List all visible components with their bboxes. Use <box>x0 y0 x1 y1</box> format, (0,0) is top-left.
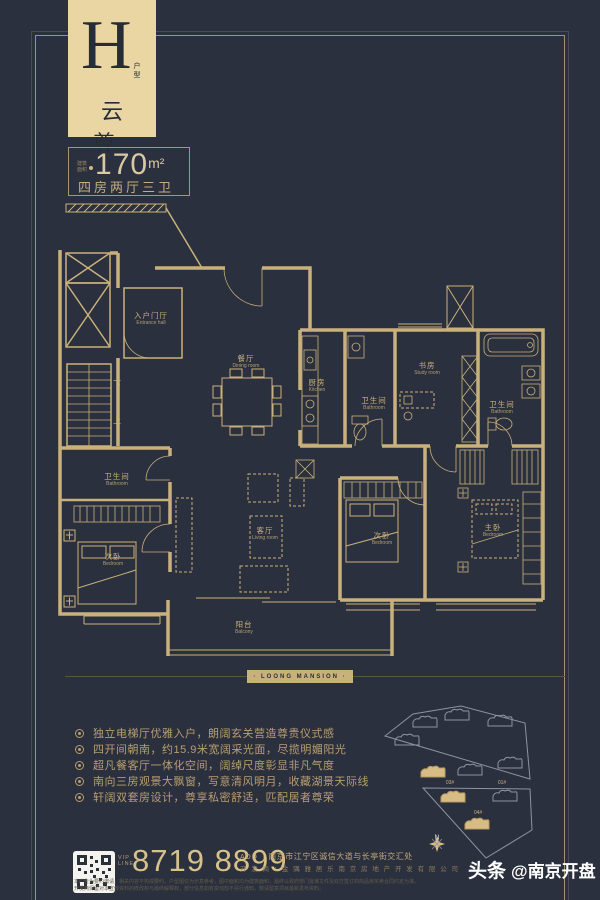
feature-item-5: 轩阔双套房设计，尊享私密舒适，匹配居者尊荣 <box>75 789 369 805</box>
legal-line-2: 开发商保留对本宣传资料的修改权与最终解释权，部分信息如有变动恕不另行通知，敬请留… <box>74 886 560 893</box>
feature-text: 超凡餐客厅一体化空间，阔绰尺度彰显非凡气度 <box>93 757 335 773</box>
feature-text: 独立电梯厅优雅入户，朗阔玄关营造尊贵仪式感 <box>93 725 335 741</box>
stairs-down: 下 <box>113 379 121 390</box>
feature-item-4: 南向三房观景大飘窗，写意清风明月，收藏湖景天际线 <box>75 773 369 789</box>
address-divider: ｜ <box>260 852 269 861</box>
address-label: ADD <box>240 854 258 861</box>
site-map <box>383 690 547 868</box>
bullet-icon <box>75 729 84 738</box>
building-label-04: 04# <box>474 810 482 816</box>
bullet-icon <box>75 777 84 786</box>
watermark-bold: 头条 <box>468 856 506 883</box>
feature-list: 独立电梯厅优雅入户，朗阔玄关营造尊贵仪式感四开间朝南，约15.9米宽阔采光面，尽… <box>75 725 369 805</box>
unit-letter: H <box>81 14 132 78</box>
address-row: ADD｜南京市江宁区诚信大道与长亭街交汇处 <box>240 851 413 862</box>
poster: H 户型 云 尊 建筑 面积 170 m² 四房两厅三卫 <box>0 0 600 900</box>
unit-type-badge: H 户型 云 尊 <box>68 0 156 137</box>
feature-text: 南向三房观景大飘窗，写意清风明月，收藏湖景天际线 <box>93 773 369 789</box>
room-layout: 四房两厅三卫 <box>78 177 174 196</box>
feature-item-1: 独立电梯厅优雅入户，朗阔玄关营造尊贵仪式感 <box>75 725 369 741</box>
watermark-handle: @南京开盘 <box>511 857 596 882</box>
brand-band: · LOONG MANSION · <box>247 670 353 683</box>
watermark: 头条 @南京开盘 <box>468 856 596 883</box>
north-label: N <box>434 835 439 842</box>
building-label-01: 01# <box>498 780 506 786</box>
area-box: 建筑 面积 170 m² 四房两厅三卫 <box>68 147 190 196</box>
area-value: 170 <box>95 151 148 179</box>
feature-item-2: 四开间朝南，约15.9米宽阔采光面，尽揽明媚阳光 <box>75 741 369 757</box>
feature-text: 轩阔双套房设计，尊享私密舒适，匹配居者尊荣 <box>93 789 335 805</box>
bullet-icon <box>75 793 84 802</box>
area-label: 建筑 面积 <box>77 161 87 173</box>
building-label-03: 03# <box>446 780 454 786</box>
stairs-up: 上 <box>113 416 121 427</box>
developer-line: 开 发 商 ：金 隅 雅 居 乐 南 京 房 地 产 开 发 有 限 公 司 <box>240 863 460 873</box>
floor-plan <box>55 200 547 665</box>
address-text: 南京市江宁区诚信大道与长亭街交汇处 <box>268 852 413 861</box>
bullet-icon <box>75 761 84 770</box>
dot-icon <box>89 166 93 170</box>
unit-letter-sub: 户型 <box>131 62 141 80</box>
area-unit: m² <box>148 155 164 171</box>
feature-text: 四开间朝南，约15.9米宽阔采光面，尽揽明媚阳光 <box>93 741 346 757</box>
feature-item-3: 超凡餐客厅一体化空间，阔绰尺度彰显非凡气度 <box>75 757 369 773</box>
area-row: 建筑 面积 170 m² <box>77 151 164 179</box>
bullet-icon <box>75 745 84 754</box>
